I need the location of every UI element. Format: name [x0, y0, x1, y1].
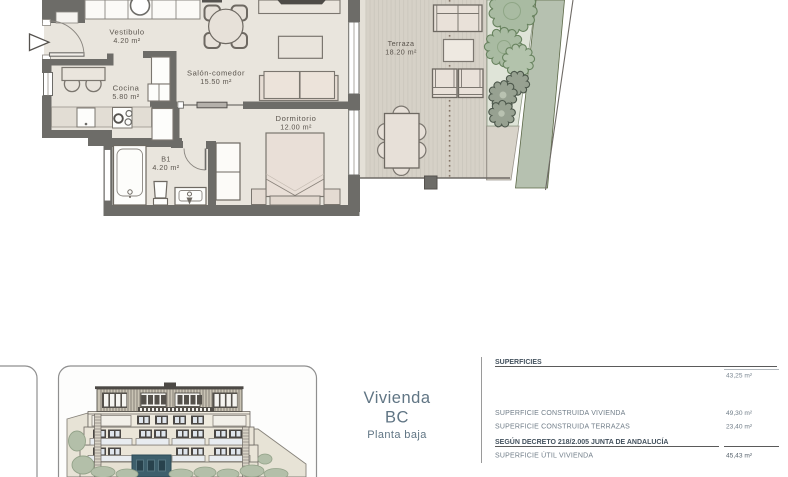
- svg-text:4.20 m²: 4.20 m²: [152, 163, 179, 172]
- svg-text:4.20 m²: 4.20 m²: [113, 36, 140, 45]
- svg-text:SEGÚN DECRETO 218/2.005 JUNTA: SEGÚN DECRETO 218/2.005 JUNTA DE ANDALUC…: [495, 437, 668, 446]
- svg-text:12.00 m²: 12.00 m²: [280, 123, 312, 132]
- svg-text:SUPERFICIES: SUPERFICIES: [495, 359, 542, 366]
- svg-text:SUPERFICIE ÚTIL VIVIENDA: SUPERFICIE ÚTIL VIVIENDA: [495, 451, 593, 460]
- svg-text:15.50 m²: 15.50 m²: [200, 77, 232, 86]
- svg-text:SUPERFICIE CONSTRUIDA VIVIENDA: SUPERFICIE CONSTRUIDA VIVIENDA: [495, 410, 626, 417]
- svg-text:45,43 m²: 45,43 m²: [726, 453, 753, 460]
- svg-text:43,25 m²: 43,25 m²: [726, 373, 753, 380]
- svg-text:BC: BC: [385, 409, 409, 427]
- svg-text:Planta baja: Planta baja: [367, 429, 427, 441]
- svg-text:Vivienda: Vivienda: [364, 389, 431, 407]
- svg-text:23,40 m²: 23,40 m²: [726, 424, 753, 431]
- svg-text:49,30 m²: 49,30 m²: [726, 410, 753, 417]
- svg-text:5.80 m²: 5.80 m²: [112, 92, 139, 101]
- svg-text:SUPERFICIE CONSTRUIDA TERRAZAS: SUPERFICIE CONSTRUIDA TERRAZAS: [495, 424, 630, 431]
- svg-text:18.20 m²: 18.20 m²: [385, 48, 417, 57]
